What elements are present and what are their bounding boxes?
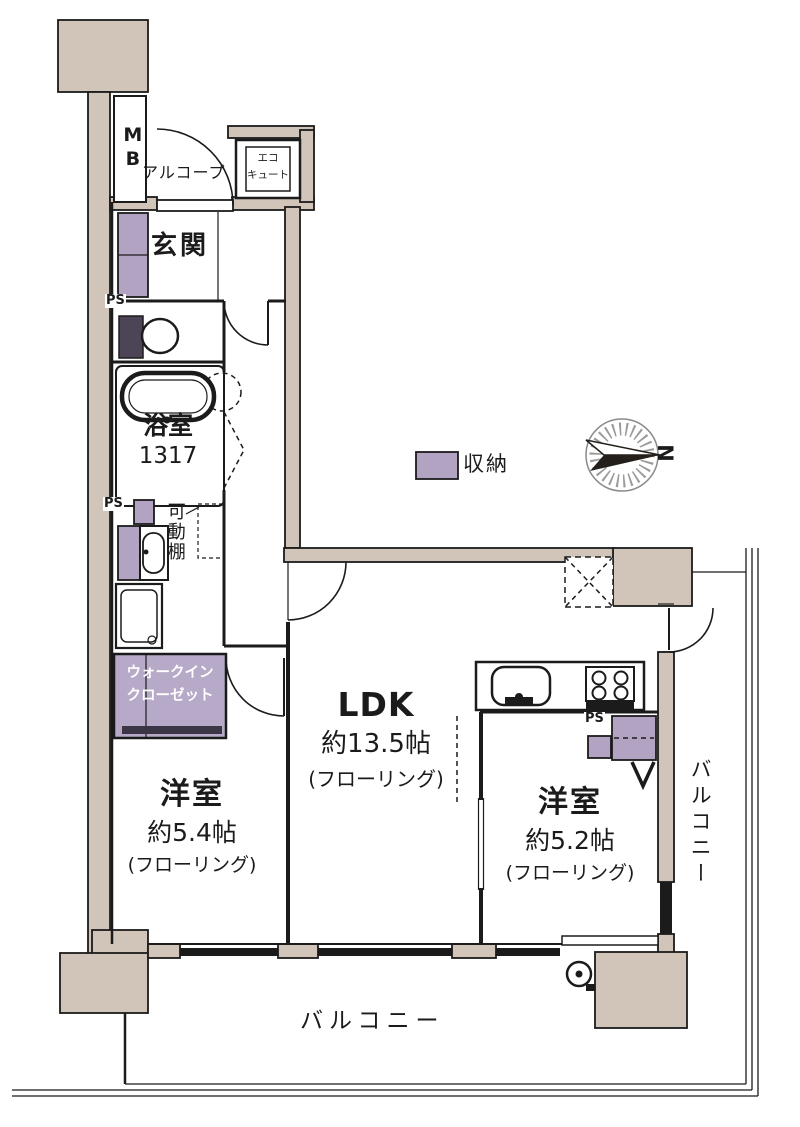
balcony-door	[658, 604, 713, 652]
wic-door	[226, 658, 284, 716]
kitchen-counter	[476, 662, 644, 710]
pipe-space-box	[134, 500, 154, 524]
ldk-size: 約13.5帖	[288, 730, 464, 760]
range-hood-mark	[565, 557, 613, 607]
floor-plan-drawing	[0, 0, 800, 1127]
ecocute-label-line2: キュート	[247, 169, 289, 181]
pipe-space-label-1: PS	[105, 294, 126, 308]
balcony-right-label: バルコニー	[688, 758, 712, 888]
pipe-space-right	[588, 716, 656, 786]
wic-label-line2: クローゼット	[127, 688, 214, 704]
bedroom1-name: 洋室	[104, 778, 280, 813]
floor-plan: MB アルコープ エコ キュート 玄関 PS 浴室 1317 PS 可動棚 ウォ…	[0, 0, 800, 1127]
shoe-cabinet	[118, 213, 148, 297]
compass	[586, 419, 660, 491]
ldk-name: LDK	[288, 686, 464, 724]
meter-box-label: MB	[121, 124, 143, 172]
bedroom2-name: 洋室	[482, 786, 658, 821]
bedroom1-size: 約5.4帖	[104, 819, 280, 848]
legend-storage-label: 収納	[463, 452, 509, 476]
bathroom-size: 1317	[112, 443, 224, 469]
bedroom2-floor: (フローリング)	[482, 863, 658, 885]
toilet	[119, 316, 178, 358]
alcove-label: アルコープ	[142, 164, 226, 182]
ldk-door	[288, 562, 346, 620]
bathroom-name: 浴室	[112, 412, 224, 441]
bedroom2-low-window	[562, 936, 658, 945]
legend-storage-swatch	[416, 452, 458, 479]
movable-shelf-label: 可動棚	[164, 502, 185, 562]
ldk-labels: LDK 約13.5帖 (フローリング)	[288, 686, 464, 791]
movable-shelf	[186, 504, 224, 558]
toilet-door	[224, 301, 268, 345]
balcony-bottom-label: バルコニー	[300, 1008, 445, 1034]
bedroom2-labels: 洋室 約5.2帖 (フローリング)	[482, 786, 658, 885]
balcony-faucet	[567, 962, 595, 991]
bedroom1-labels: 洋室 約5.4帖 (フローリング)	[104, 778, 280, 877]
pipe-space-label-3: PS	[584, 712, 605, 726]
wic-label-line1: ウォークイン	[127, 665, 214, 681]
pipe-space-label-2: PS	[103, 497, 124, 511]
washbasin	[118, 526, 168, 580]
washing-machine	[116, 584, 162, 648]
vent-mark	[632, 762, 654, 786]
ldk-floor: (フローリング)	[288, 768, 464, 791]
ecocute-label-line1: エコ	[258, 152, 279, 164]
entrance-label: 玄関	[151, 232, 209, 262]
bedroom1-floor: (フローリング)	[104, 855, 280, 877]
bedroom2-size: 約5.2帖	[482, 827, 658, 856]
compass-north-label: N	[653, 444, 677, 462]
